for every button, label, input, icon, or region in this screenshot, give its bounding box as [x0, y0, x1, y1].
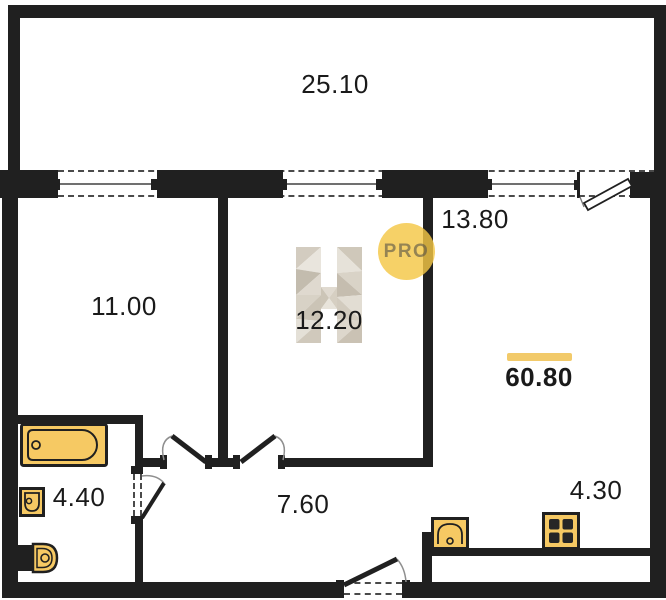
wall-bottom-left — [2, 582, 344, 598]
area-label-room-right: 13.80 — [441, 206, 509, 232]
entrance-door-jamb — [336, 580, 344, 598]
bathroom-sink-icon — [19, 487, 45, 517]
bathtub — [20, 423, 108, 467]
bathroom-door-jamb — [131, 516, 143, 524]
window-sill-middle — [283, 183, 382, 185]
door-swing-arc — [397, 559, 406, 582]
bathroom-door-jamb — [131, 466, 143, 474]
window-end-mark — [486, 179, 492, 190]
wall-bathroom-right-lower — [135, 524, 143, 582]
bathroom-door-dash-right — [140, 474, 142, 516]
window-band-dash-top — [58, 170, 655, 172]
wall-hallway-segment-3 — [278, 458, 433, 467]
window-end-mark — [376, 179, 382, 190]
area-label-terrace: 25.10 — [301, 71, 369, 97]
door-leaf-room-middle — [241, 436, 275, 462]
door-jamb — [233, 455, 240, 469]
wall-terrace-right — [654, 5, 666, 173]
toilet-icon — [18, 542, 59, 574]
toilet — [18, 542, 59, 574]
bathroom-door-dash-left — [133, 474, 135, 516]
entrance-door-dash-top — [344, 582, 402, 584]
door-jamb — [278, 455, 285, 469]
window-end-mark — [151, 179, 157, 190]
wall-bottom-right — [404, 582, 666, 598]
window-sill-left — [58, 183, 157, 185]
entrance-door-jamb — [402, 580, 410, 598]
door-jamb — [160, 455, 167, 469]
area-label-hallway: 7.60 — [277, 491, 330, 517]
wall-band-segment-2 — [157, 170, 283, 198]
pro-badge-label: PRO — [384, 241, 430, 263]
stove-icon — [542, 512, 580, 550]
wall-between-left-middle-rooms — [218, 198, 228, 467]
bathtub-icon — [20, 423, 108, 467]
door-leaf-bathroom — [142, 483, 164, 518]
balcony-door-frame-tick — [574, 180, 580, 190]
balcony-door-line — [580, 197, 584, 207]
bathroom-sink — [19, 487, 45, 517]
door-leaf-room-left — [172, 436, 206, 462]
wall-terrace-left — [8, 5, 20, 172]
window-band-dash-bottom — [58, 195, 655, 197]
area-label-kitchen: 4.30 — [570, 477, 623, 503]
floor-plan: PRO 25.10 11.00 12.20 13.80 4.40 7.60 4.… — [0, 0, 666, 600]
window-end-mark — [281, 179, 287, 190]
entrance-door-dash-bottom — [344, 593, 402, 595]
pro-badge: PRO — [378, 223, 435, 280]
door-jamb — [205, 455, 212, 469]
area-label-room-middle: 12.20 — [295, 307, 363, 333]
wall-band-segment-3 — [382, 170, 488, 198]
area-label-bathroom: 4.40 — [53, 484, 106, 510]
window-end-mark — [54, 179, 60, 190]
total-area-accent-bar — [507, 353, 572, 361]
total-area-label: 60.80 — [505, 364, 573, 390]
door-swing-arc — [142, 476, 164, 483]
wall-terrace-top — [8, 5, 666, 18]
window-sill-right — [488, 183, 578, 185]
stove — [542, 512, 580, 550]
area-label-room-left: 11.00 — [91, 293, 157, 319]
kitchen-sink — [431, 517, 469, 550]
wall-outer-left — [2, 172, 18, 598]
kitchen-sink-icon — [431, 517, 469, 550]
wall-outer-right — [650, 173, 666, 598]
